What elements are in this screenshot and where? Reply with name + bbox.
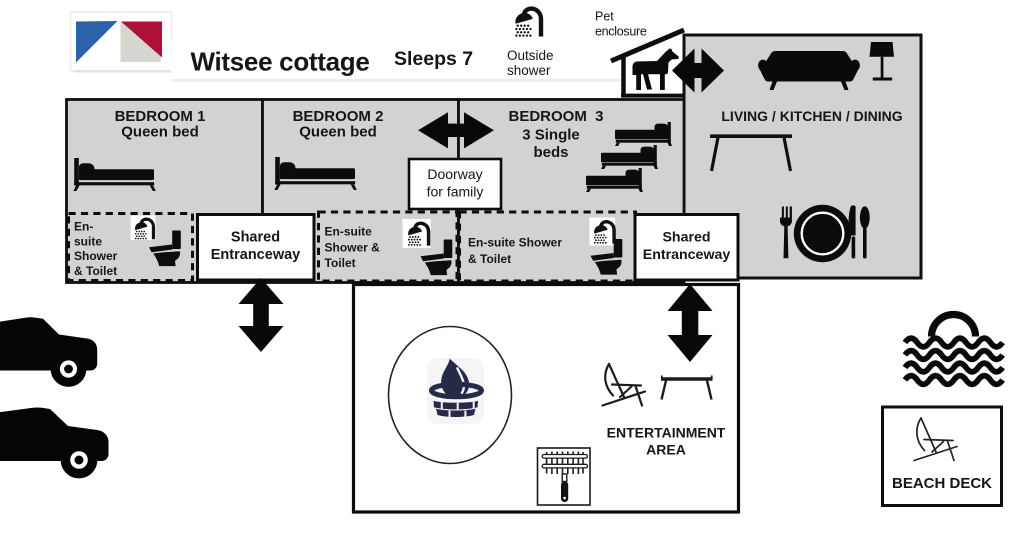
svg-text:Shared: Shared [231, 230, 280, 246]
svg-text:for family: for family [427, 184, 484, 200]
svg-text:shower: shower [507, 63, 551, 78]
svg-text:suite: suite [74, 234, 102, 248]
svg-text:BEDROOM 1: BEDROOM 1 [115, 108, 206, 125]
svg-text:Witsee cottage: Witsee cottage [190, 47, 369, 77]
svg-text:LIVING / KITCHEN / DINING: LIVING / KITCHEN / DINING [721, 108, 902, 124]
svg-text:Entranceway: Entranceway [643, 247, 731, 263]
svg-text:enclosure: enclosure [595, 25, 647, 39]
svg-text:En-: En- [74, 220, 93, 234]
svg-text:& Toilet: & Toilet [74, 264, 117, 278]
svg-text:Shower: Shower [74, 249, 118, 263]
svg-text:En-suite: En-suite [325, 225, 373, 239]
svg-text:Toilet: Toilet [325, 256, 356, 270]
svg-text:BEDROOM 3: BEDROOM 3 [508, 108, 603, 125]
svg-text:beds: beds [533, 144, 568, 161]
svg-text:En-suite Shower: En-suite Shower [468, 236, 562, 250]
svg-text:ENTERTAINMENT: ENTERTAINMENT [607, 425, 726, 441]
svg-text:BEDROOM 2: BEDROOM 2 [293, 108, 384, 125]
svg-text:AREA: AREA [646, 442, 686, 458]
svg-text:Shower &: Shower & [325, 240, 381, 254]
svg-text:Sleeps 7: Sleeps 7 [394, 48, 473, 70]
svg-text:Shared: Shared [662, 230, 710, 246]
svg-text:Outside: Outside [507, 48, 554, 63]
svg-text:Queen bed: Queen bed [299, 124, 377, 141]
svg-text:BEACH DECK: BEACH DECK [892, 475, 992, 492]
svg-text:& Toilet: & Toilet [468, 252, 511, 266]
svg-text:Entranceway: Entranceway [211, 247, 300, 263]
svg-text:Doorway: Doorway [427, 166, 482, 182]
svg-text:Pet: Pet [595, 10, 614, 24]
svg-text:Queen bed: Queen bed [121, 124, 199, 141]
svg-text:3 Single: 3 Single [522, 127, 580, 144]
